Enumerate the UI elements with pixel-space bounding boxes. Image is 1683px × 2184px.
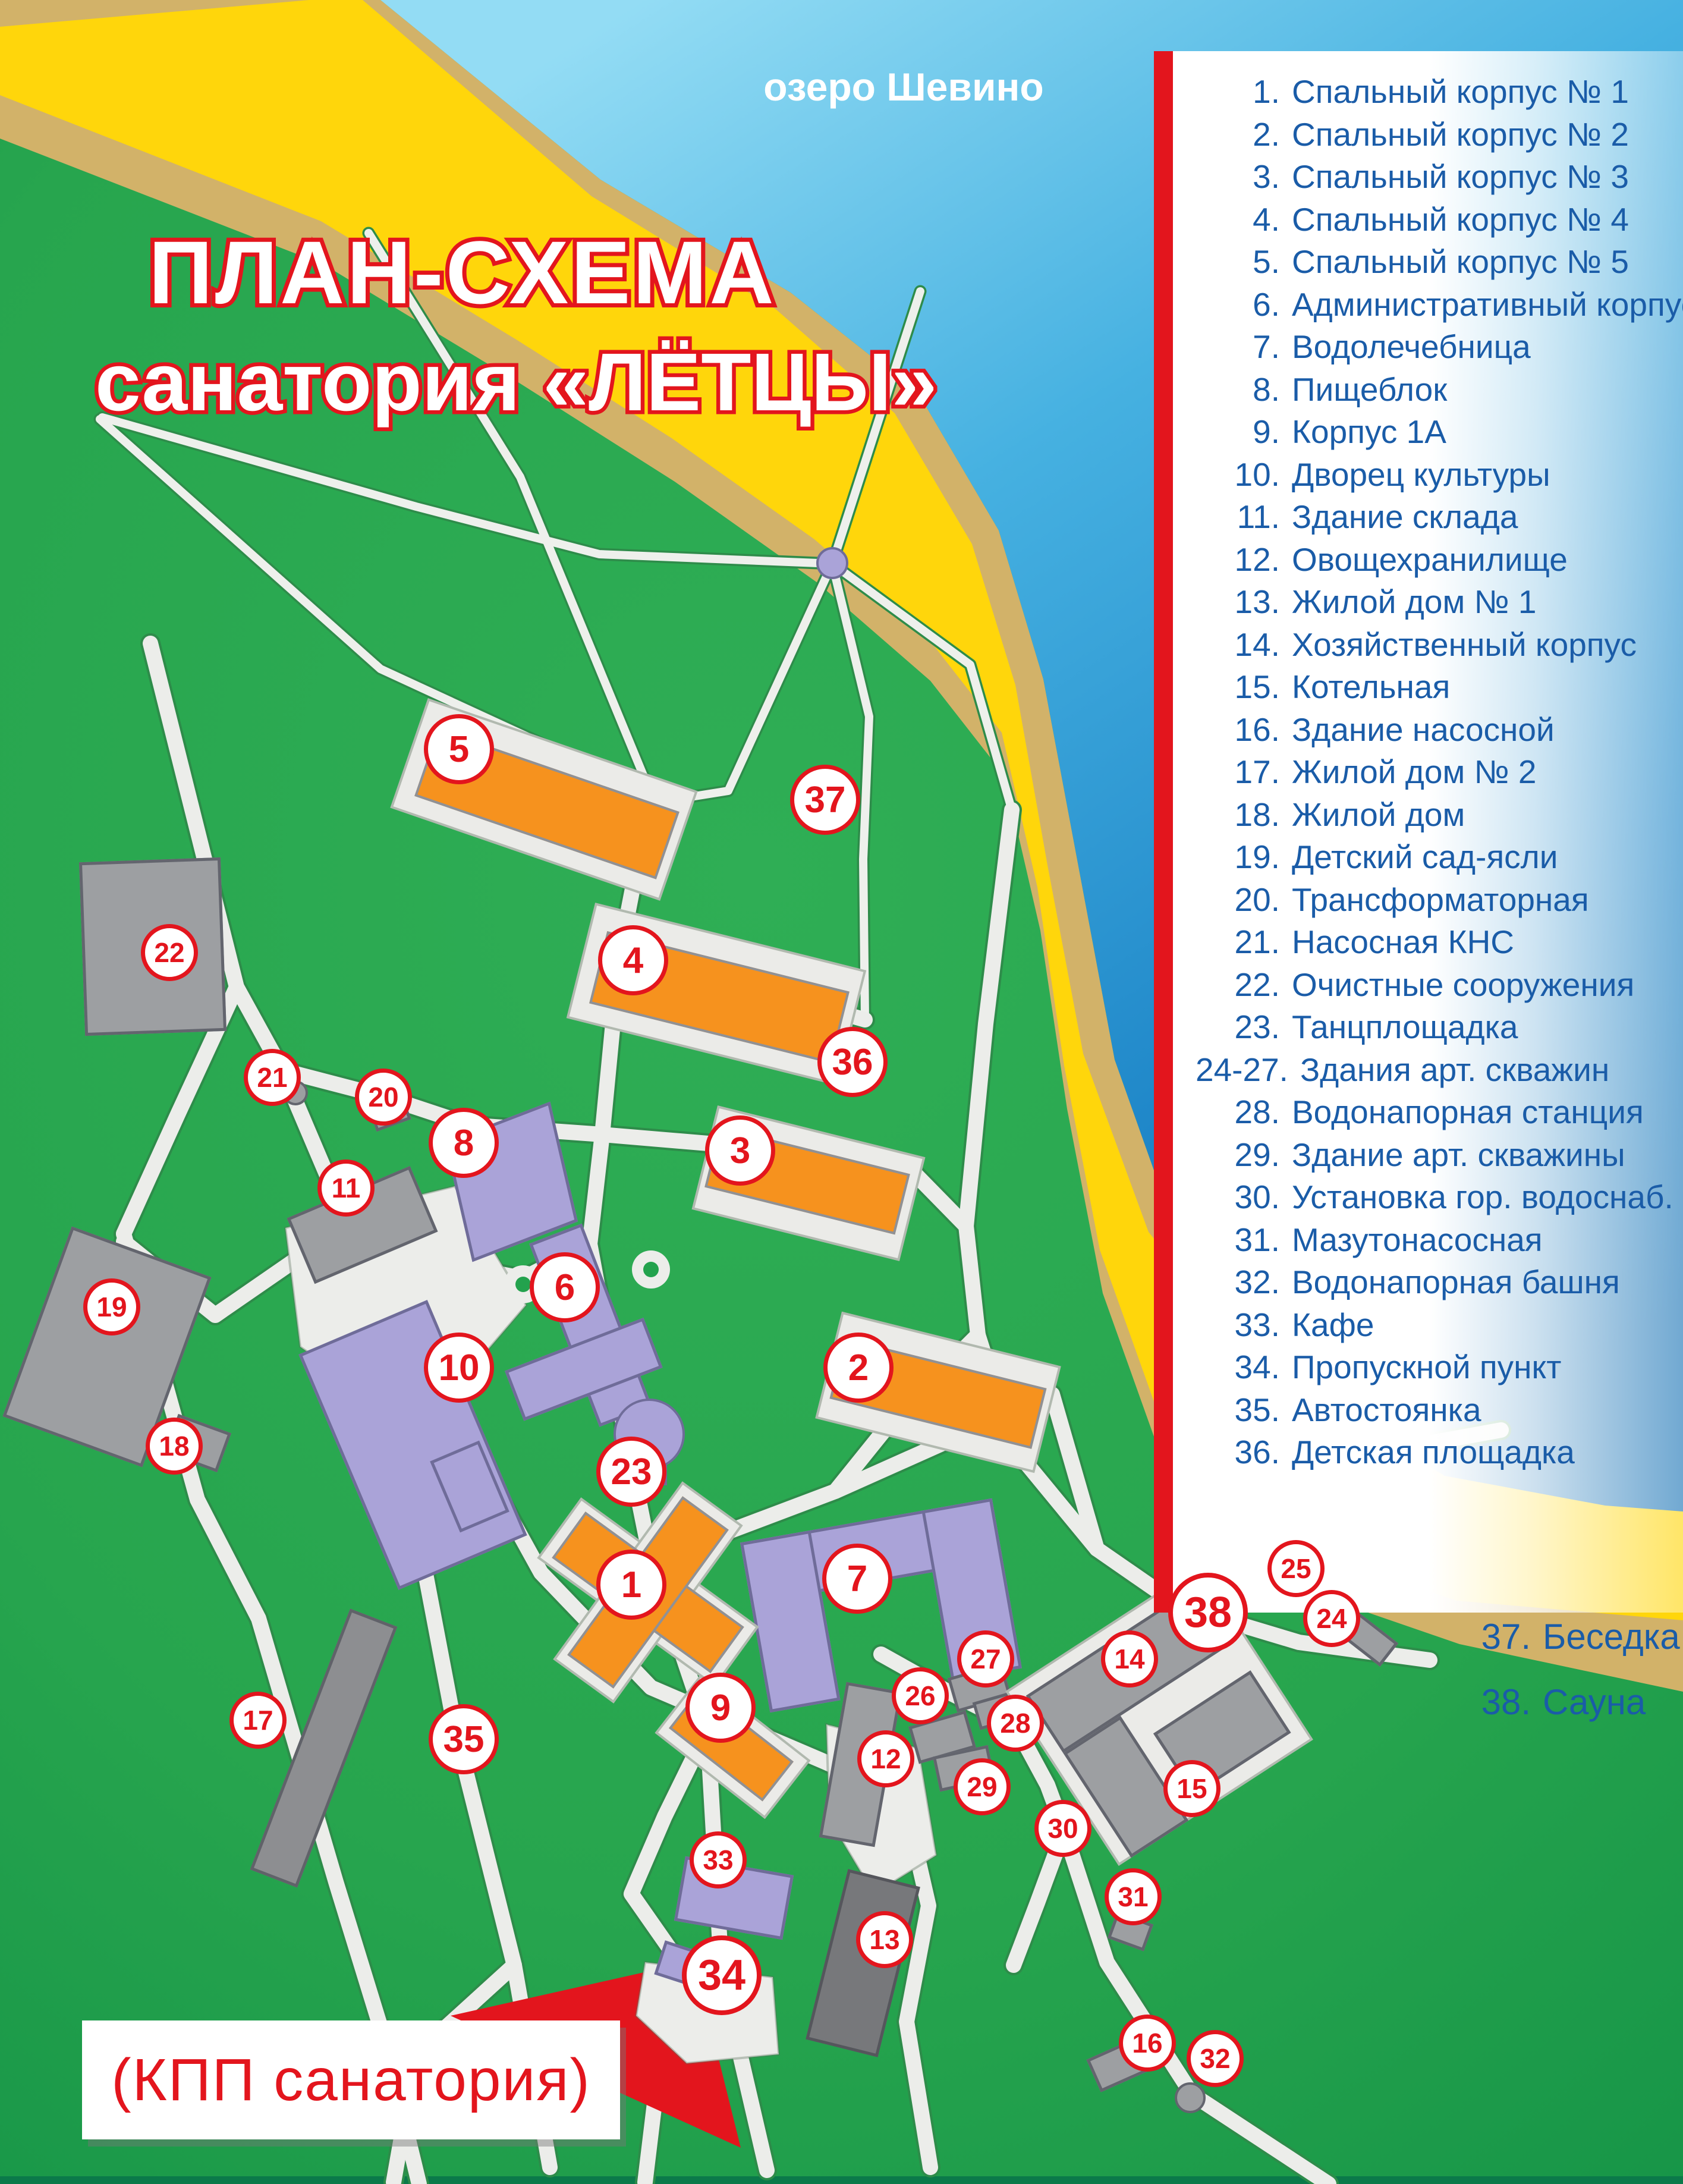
legend-item: 29. Здание арт. скважины (1196, 1136, 1677, 1179)
map-marker[interactable]: 38 (1168, 1573, 1248, 1652)
map-marker[interactable]: 10 (424, 1333, 494, 1403)
map-marker[interactable]: 33 (690, 1831, 747, 1888)
legend-item: 35. Автостоянка (1196, 1391, 1677, 1434)
map-marker[interactable]: 15 (1163, 1760, 1220, 1817)
map-marker[interactable]: 18 (146, 1418, 203, 1475)
legend-item: 36. Детская площадка (1196, 1433, 1677, 1476)
lake-label: озеро Шевино (707, 64, 1100, 109)
map-marker[interactable]: 3 (705, 1115, 775, 1186)
legend-item: 6. Административный корпус (1196, 285, 1677, 328)
legend-item: 14. Хозяйственный корпус (1196, 626, 1677, 668)
map-marker[interactable]: 27 (957, 1630, 1014, 1688)
legend-item: 34. Пропускной пункт (1196, 1348, 1677, 1391)
map-marker[interactable]: 37 (790, 765, 860, 835)
legend-item: 21. Насосная КНС (1196, 923, 1677, 966)
map-marker[interactable]: 36 (817, 1027, 888, 1097)
map-marker[interactable]: 4 (598, 925, 668, 995)
map-marker[interactable]: 28 (987, 1695, 1044, 1752)
legend-item: 12. Овощехранилище (1196, 540, 1677, 583)
map-marker[interactable]: 22 (141, 924, 198, 981)
legend-item: 24-27. Здания арт. скважин (1196, 1051, 1677, 1093)
legend-item: 4. Спальный корпус № 4 (1196, 200, 1677, 243)
legend-item: 8. Пищеблок (1196, 370, 1677, 413)
legend-item: 22. Очистные сооружения (1196, 966, 1677, 1008)
building-32-water-tower (1175, 2082, 1206, 2113)
map-marker[interactable]: 5 (424, 714, 494, 784)
map-marker[interactable]: 7 (822, 1544, 892, 1614)
map-marker[interactable]: 32 (1187, 2030, 1244, 2087)
legend-panel: 1. Спальный корпус № 1 2. Спальный корпу… (1154, 51, 1683, 1613)
legend-item: 5. Спальный корпус № 5 (1196, 243, 1677, 285)
map-marker[interactable]: 14 (1101, 1630, 1158, 1688)
legend-item: 37. Беседка (1459, 1616, 1680, 1682)
map-marker[interactable]: 25 (1267, 1540, 1325, 1597)
legend-item: 10. Дворец культуры (1196, 455, 1677, 498)
map-marker[interactable]: 1 (596, 1550, 666, 1620)
legend-item: 2. Спальный корпус № 2 (1196, 115, 1677, 158)
legend-item: 17. Жилой дом № 2 (1196, 753, 1677, 796)
map-marker[interactable]: 17 (229, 1692, 287, 1749)
legend-item: 3. Спальный корпус № 3 (1196, 158, 1677, 200)
legend-item: 28. Водонапорная станция (1196, 1093, 1677, 1136)
roundabout-east (632, 1250, 670, 1289)
map-marker[interactable]: 19 (83, 1278, 140, 1335)
site-plan-map: 1 2 3 4 5 6 7 8 9 10 11 12 13 14 15 (0, 0, 1683, 2184)
legend-item: 15. Котельная (1196, 668, 1677, 711)
title-line-1: ПЛАН-СХЕМА (149, 222, 776, 322)
map-marker[interactable]: 31 (1105, 1868, 1162, 1925)
map-marker[interactable]: 6 (530, 1252, 600, 1322)
legend-item: 32. Водонапорная башня (1196, 1263, 1677, 1306)
map-marker[interactable]: 23 (596, 1437, 666, 1507)
map-marker[interactable]: 26 (892, 1667, 949, 1724)
legend-item: 7. Водолечебница (1196, 328, 1677, 370)
legend-item: 33. Кафе (1196, 1306, 1677, 1349)
map-marker[interactable]: 13 (856, 1911, 913, 1968)
legend-item: 18. Жилой дом (1196, 796, 1677, 838)
legend-item: 23. Танцплощадка (1196, 1008, 1677, 1051)
map-marker[interactable]: 29 (954, 1758, 1011, 1815)
legend-items: 1. Спальный корпус № 1 2. Спальный корпу… (1196, 73, 1677, 1476)
map-marker[interactable]: 16 (1119, 2015, 1176, 2072)
gate-label: (КПП санатория) (111, 2046, 591, 2114)
legend-item: 20. Трансформаторная (1196, 881, 1677, 923)
legend-item: 13. Жилой дом № 1 (1196, 583, 1677, 626)
map-marker[interactable]: 20 (355, 1069, 412, 1126)
legend-red-stripe (1154, 51, 1173, 1613)
legend-item: 1. Спальный корпус № 1 (1196, 73, 1677, 115)
legend-item: 38. Сауна (1459, 1682, 1680, 1747)
map-marker[interactable]: 9 (685, 1673, 756, 1743)
map-marker[interactable]: 24 (1303, 1590, 1360, 1647)
legend-item: 19. Детский сад-ясли (1196, 838, 1677, 881)
legend-item: 31. Мазутонасосная (1196, 1221, 1677, 1264)
map-marker[interactable]: 21 (244, 1049, 301, 1106)
map-marker[interactable]: 35 (429, 1704, 499, 1774)
map-marker[interactable]: 2 (823, 1333, 894, 1403)
gate-label-box: (КПП санатория) (82, 2020, 620, 2139)
map-marker[interactable]: 30 (1034, 1800, 1091, 1857)
map-title: ПЛАН-СХЕМА санатория «ЛЁТЦЫ» (54, 166, 1124, 583)
map-marker[interactable]: 34 (682, 1935, 762, 2015)
legend-item: 9. Корпус 1А (1196, 413, 1677, 455)
map-marker[interactable]: 11 (317, 1159, 375, 1217)
legend-item: 16. Здание насосной (1196, 711, 1677, 753)
legend-extra-items: 37. Беседка 38. Сауна (1459, 1616, 1680, 1747)
legend-item: 30. Установка гор. водоснаб. (1196, 1178, 1677, 1221)
map-marker[interactable]: 8 (429, 1108, 499, 1178)
map-marker[interactable]: 12 (857, 1730, 914, 1787)
legend-item: 11. Здание склада (1196, 498, 1677, 540)
title-line-2: санатория «ЛЁТЦЫ» (95, 337, 937, 428)
